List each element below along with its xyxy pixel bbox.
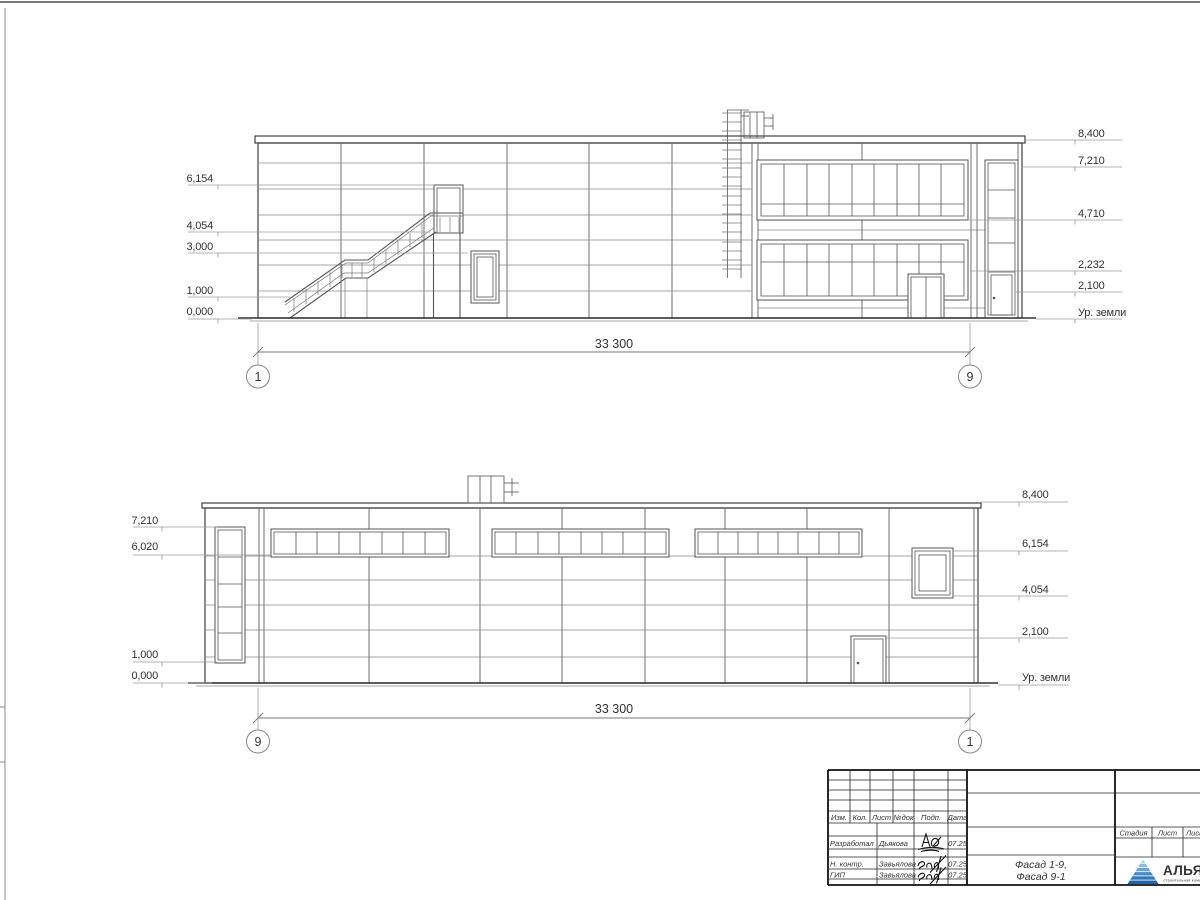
signature xyxy=(918,867,946,884)
logo-pyramid-icon xyxy=(1126,860,1160,885)
signature xyxy=(918,856,946,873)
elevation-label: 0,000 xyxy=(186,306,213,318)
entry-double-door xyxy=(908,274,944,318)
elevation-marks-left: 7,210 6,020 1,000 0,000 xyxy=(131,515,272,688)
sign-role: Разработал xyxy=(830,839,874,848)
drawing-sheet: 6,154 4,054 3,000 1,000 0,000 8,400 7,21… xyxy=(0,0,1200,900)
elevation-label: 2,100 xyxy=(1078,280,1105,292)
sheet-frame xyxy=(0,2,1200,900)
axis-marker: 9 xyxy=(967,370,974,384)
window-band-b xyxy=(492,529,669,557)
col-header: №док xyxy=(894,813,914,822)
elevation-label: 7,210 xyxy=(131,515,158,527)
rooftop-structure xyxy=(468,476,519,503)
doc-title-cell: Фасад 1-9, Фасад 9-1 xyxy=(1015,859,1067,883)
elevation-label: 3,000 xyxy=(186,241,213,253)
doc-title-line2: Фасад 9-1 xyxy=(1016,871,1065,883)
window-band-a xyxy=(271,529,449,557)
sign-name: Завьялова xyxy=(879,860,916,869)
elevation-label: 1,000 xyxy=(186,285,213,297)
elevation-label: 2,100 xyxy=(1022,626,1049,638)
sign-date: 07.25 xyxy=(948,860,968,869)
col-header: Подп. xyxy=(921,813,941,822)
elevation-marks-left: 6,154 4,054 3,000 1,000 0,000 xyxy=(186,173,468,324)
elevation-label: 8,400 xyxy=(1078,128,1105,140)
elevation-label: 8,400 xyxy=(1022,489,1049,501)
col-header: Дата xyxy=(947,813,968,822)
stage-header-row: Стадия Лист Листов xyxy=(1119,829,1200,838)
sign-role: Н. контр. xyxy=(830,860,864,869)
elevation-label: 6,154 xyxy=(1022,538,1049,550)
axis-marker: 1 xyxy=(967,735,974,749)
doc-title-line1: Фасад 1-9, xyxy=(1015,859,1067,871)
col-header: Изм. xyxy=(831,813,847,822)
ground-level-label: Ур. земли xyxy=(1078,307,1126,319)
sign-date: 07.25 xyxy=(948,871,968,880)
title-block: Изм. Кол. Лист №док Подп. Дата Разработа… xyxy=(828,770,1200,885)
ground-line xyxy=(188,683,998,686)
elevation-label: 4,054 xyxy=(186,220,213,232)
signature-rows: Разработал Дьякова 07.25 Н. контр. Завья… xyxy=(830,834,968,884)
facade-1-9-drawing: 6,154 4,054 3,000 1,000 0,000 8,400 7,21… xyxy=(186,110,1126,388)
single-window xyxy=(912,548,953,598)
elevation-label: 6,020 xyxy=(131,541,158,553)
col-header: Кол. xyxy=(853,813,868,822)
company-logo: АЛЬЯНС строительная компания xyxy=(1126,860,1200,885)
sign-name: Завьялова xyxy=(879,871,916,880)
ground-line xyxy=(238,318,1036,321)
dimension-line: 33 300 9 1 xyxy=(247,688,982,753)
cad-canvas: 6,154 4,054 3,000 1,000 0,000 8,400 7,21… xyxy=(0,0,1200,900)
sign-role: ГИП xyxy=(830,871,845,880)
facade-9-1-drawing: 7,210 6,020 1,000 0,000 8,400 6,154 4,05… xyxy=(131,476,1070,753)
dimension-value: 33 300 xyxy=(595,702,633,716)
elevation-label: 7,210 xyxy=(1078,155,1105,167)
sign-name: Дьякова xyxy=(878,839,908,848)
col-header: Лист xyxy=(871,813,891,822)
stage-col-header: Листов xyxy=(1185,829,1200,838)
axis-marker: 9 xyxy=(255,735,262,749)
glazing-strip-left xyxy=(215,527,245,663)
roof-ladder xyxy=(722,110,749,278)
dimension-value: 33 300 xyxy=(595,337,633,351)
left-section-window xyxy=(471,251,499,303)
glazing-strip-right xyxy=(985,160,1018,318)
logo-tagline: строительная компания xyxy=(1164,878,1200,883)
elevation-label: 6,154 xyxy=(186,173,213,185)
elevation-label: 1,000 xyxy=(131,649,158,661)
elevation-label: 2,232 xyxy=(1078,259,1105,271)
dimension-line: 33 300 1 9 xyxy=(247,323,982,388)
window-band-c xyxy=(695,529,862,557)
title-block-header-row: Изм. Кол. Лист №док Подп. Дата xyxy=(831,813,967,822)
stage-col-header: Стадия xyxy=(1119,829,1147,838)
ground-level-label: Ур. земли xyxy=(1022,672,1070,684)
sign-date: 07.25 xyxy=(948,839,968,848)
logo-text: АЛЬЯНС xyxy=(1163,863,1200,878)
elevation-label: 4,054 xyxy=(1022,584,1049,596)
elevation-label: 0,000 xyxy=(131,670,158,682)
window-band-upper xyxy=(757,160,968,220)
axis-marker: 1 xyxy=(255,370,262,384)
service-door xyxy=(851,636,886,683)
elevation-label: 4,710 xyxy=(1078,208,1105,220)
stage-col-header: Лист xyxy=(1157,829,1177,838)
